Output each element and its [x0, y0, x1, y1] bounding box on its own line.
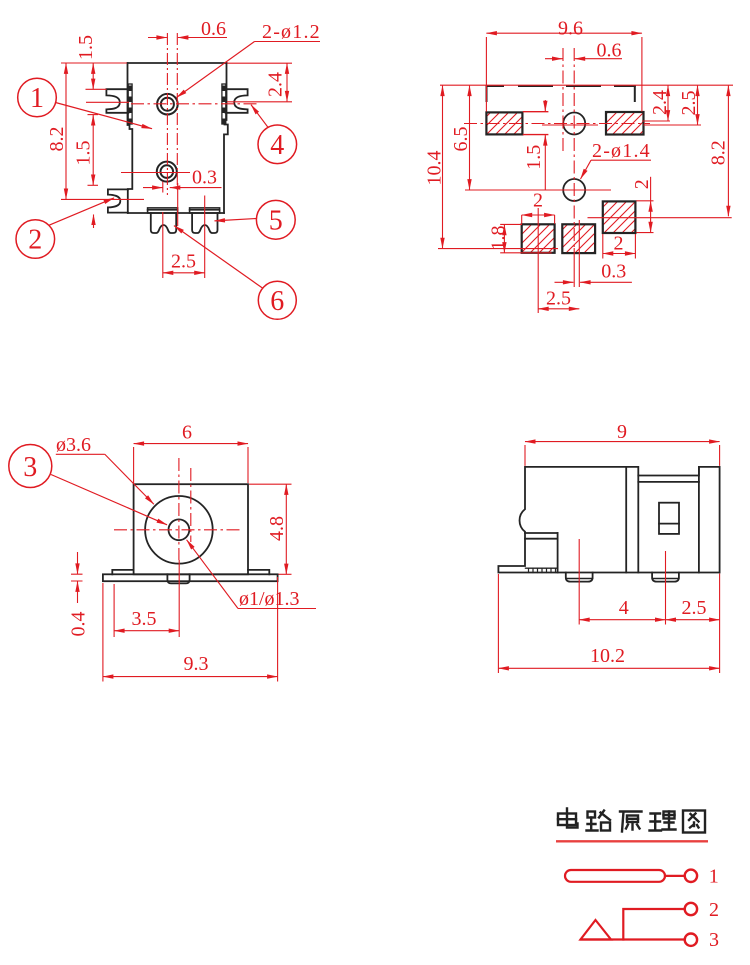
svg-text:2: 2: [533, 190, 543, 212]
svg-text:2: 2: [28, 225, 42, 256]
svg-text:1.8: 1.8: [488, 226, 510, 251]
svg-text:2.5: 2.5: [171, 251, 196, 273]
svg-text:2.5: 2.5: [546, 288, 571, 310]
svg-text:10.4: 10.4: [424, 151, 446, 186]
svg-text:2: 2: [631, 179, 653, 189]
svg-text:2.4: 2.4: [265, 72, 287, 97]
svg-text:2.5: 2.5: [682, 597, 707, 619]
svg-text:0.3: 0.3: [601, 261, 626, 283]
svg-text:1.5: 1.5: [523, 145, 545, 170]
svg-text:1: 1: [709, 866, 719, 888]
svg-text:4: 4: [270, 130, 284, 161]
svg-text:9: 9: [617, 421, 627, 443]
svg-text:6: 6: [270, 286, 284, 317]
svg-text:8.2: 8.2: [707, 140, 729, 165]
svg-text:2.5: 2.5: [678, 91, 700, 116]
svg-text:0.6: 0.6: [597, 40, 622, 62]
svg-text:0.4: 0.4: [68, 612, 90, 637]
svg-text:9.6: 9.6: [558, 18, 583, 40]
svg-text:6: 6: [182, 422, 192, 444]
svg-text:9.3: 9.3: [184, 653, 209, 675]
svg-text:ø3.6: ø3.6: [56, 434, 91, 456]
svg-text:4.8: 4.8: [266, 516, 288, 541]
svg-text:1.5: 1.5: [73, 141, 95, 166]
svg-text:2: 2: [614, 233, 624, 255]
svg-text:3: 3: [709, 929, 719, 951]
svg-text:6.5: 6.5: [450, 127, 472, 152]
svg-text:0.3: 0.3: [192, 167, 217, 189]
svg-text:0.6: 0.6: [201, 18, 226, 40]
svg-text:2: 2: [709, 899, 719, 921]
svg-text:10.2: 10.2: [590, 645, 625, 667]
svg-text:1.5: 1.5: [75, 35, 97, 60]
svg-text:1: 1: [30, 83, 44, 114]
svg-text:5: 5: [269, 205, 283, 236]
svg-text:2-ø1.4: 2-ø1.4: [592, 140, 651, 162]
svg-text:ø1/ø1.3: ø1/ø1.3: [239, 588, 300, 610]
svg-text:2-ø1.2: 2-ø1.2: [262, 21, 321, 43]
svg-text:3: 3: [23, 452, 37, 483]
svg-text:2.4: 2.4: [649, 90, 671, 115]
svg-text:4: 4: [619, 597, 629, 619]
svg-text:3.5: 3.5: [132, 608, 157, 630]
svg-text:8.2: 8.2: [46, 127, 68, 152]
